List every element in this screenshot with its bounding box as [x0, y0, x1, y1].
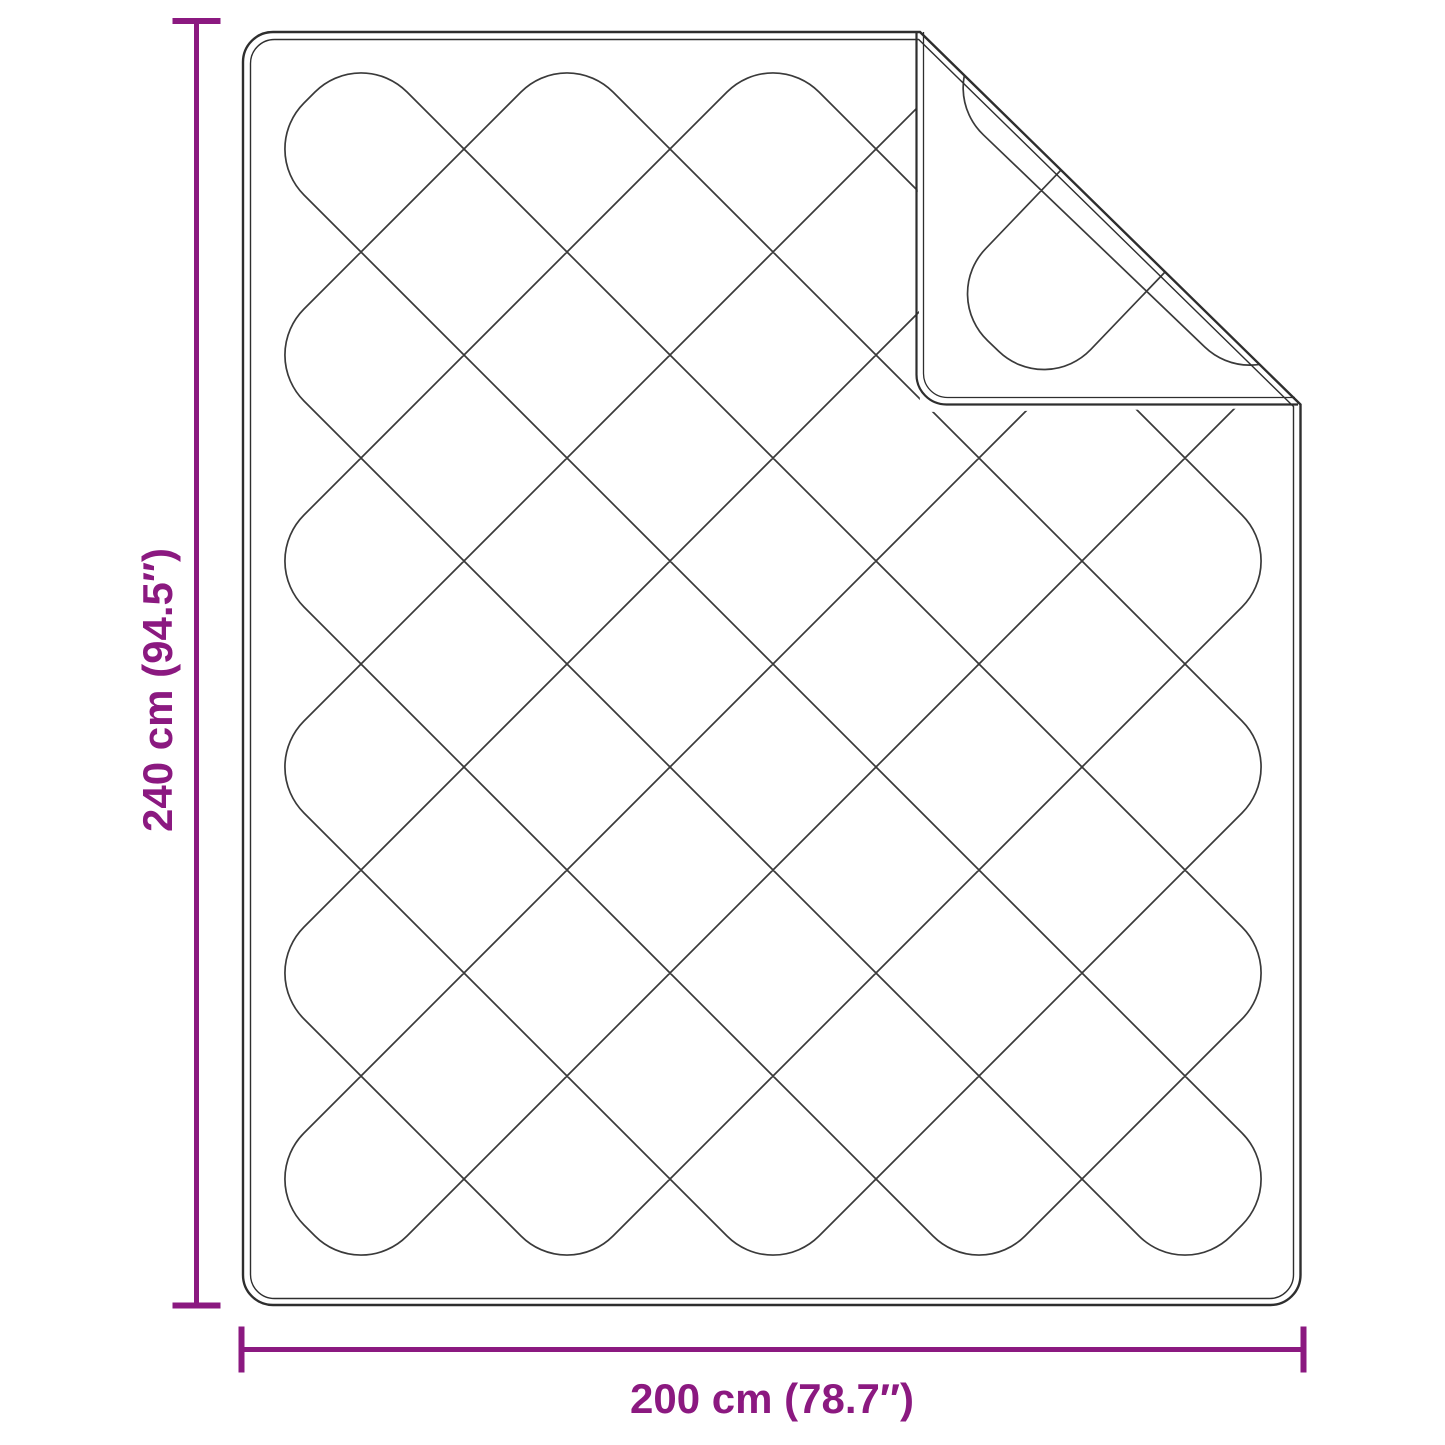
- blanket-outline-outer: [243, 32, 1301, 1305]
- height-dimension-label: 240 cm (94.5″): [134, 548, 181, 832]
- width-dimension-label: 200 cm (78.7″): [630, 1375, 914, 1422]
- width-dimension: 200 cm (78.7″): [242, 1327, 1304, 1423]
- product-dimension-diagram: 240 cm (94.5″) 200 cm (78.7″): [0, 0, 1445, 1445]
- blanket-outline-inner: [251, 40, 1294, 1299]
- blanket-diagram-canvas: 240 cm (94.5″) 200 cm (78.7″): [0, 0, 1445, 1445]
- blanket-illustration: [243, 0, 1445, 1305]
- height-dimension: 240 cm (94.5″): [134, 21, 221, 1306]
